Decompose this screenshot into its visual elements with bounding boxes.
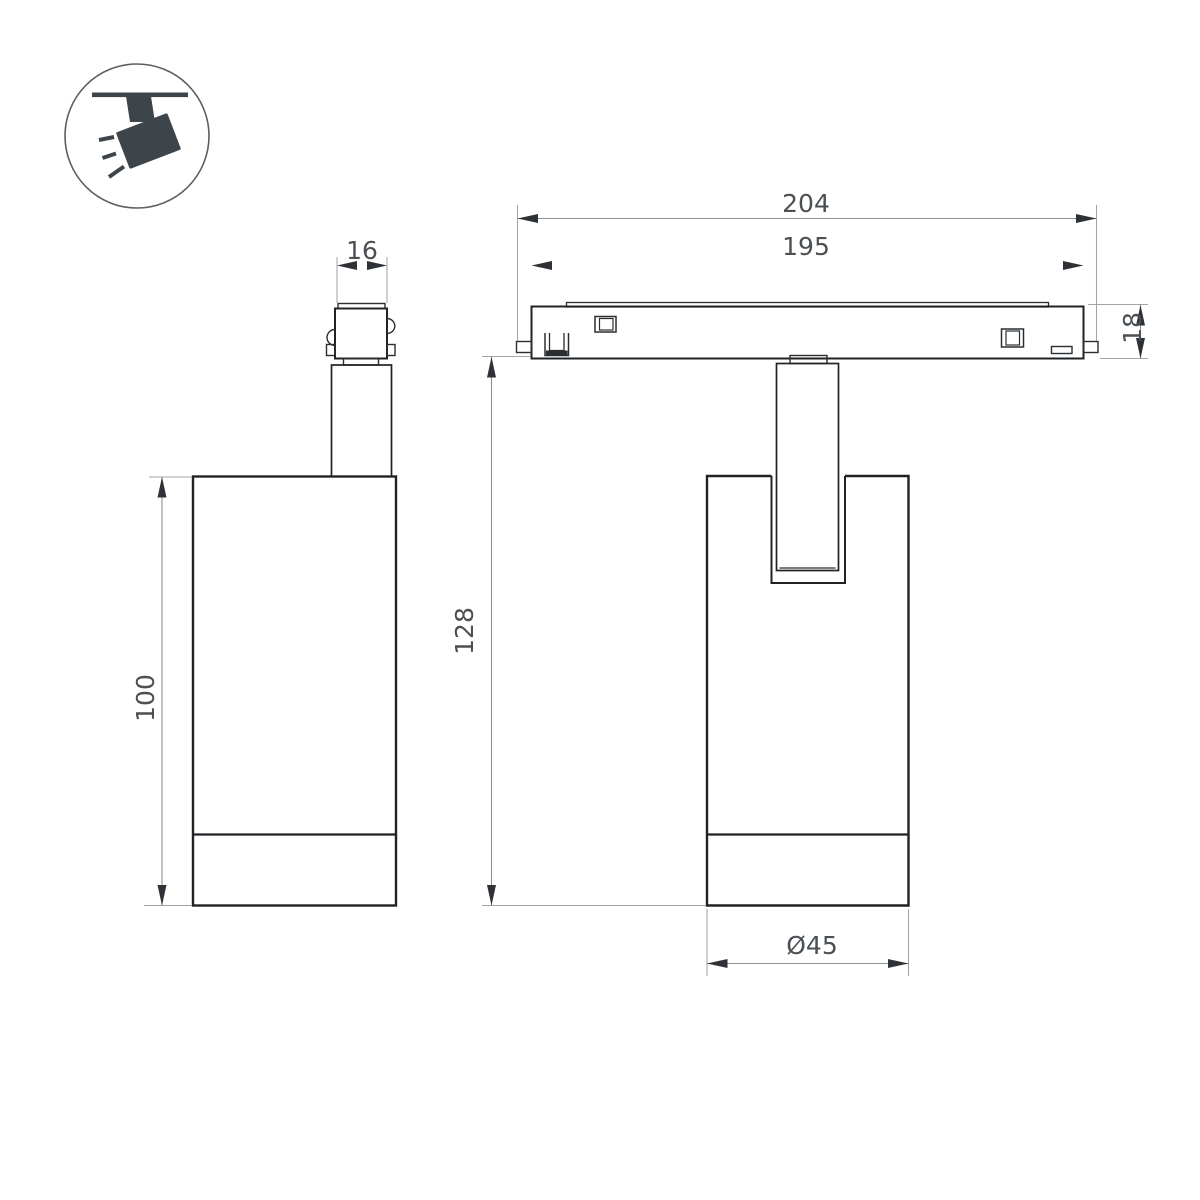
technical-drawing-page: 204 195 18 16 100 128 — [0, 0, 1200, 1200]
track-clip-left-inner — [600, 319, 614, 331]
front-adapter-tab-left — [327, 345, 336, 356]
dimension-body-height: 100 — [131, 477, 192, 906]
side-body — [707, 476, 909, 906]
front-adapter-box — [335, 309, 387, 359]
front-stem — [332, 365, 392, 477]
dim-label-100: 100 — [131, 674, 160, 722]
dimension-body-diameter: Ø45 — [707, 909, 909, 976]
side-stem — [777, 364, 839, 571]
track-u-bracket-inner — [550, 333, 565, 351]
dimension-adapter-width: 16 — [337, 236, 387, 303]
side-body-yoke-slot — [772, 476, 846, 583]
dim-label-diameter-45: Ø45 — [786, 931, 838, 960]
side-view — [517, 303, 1099, 906]
dim-label-16: 16 — [346, 236, 378, 265]
front-body — [193, 477, 396, 906]
track-u-bracket-base — [546, 351, 568, 356]
dim-label-18: 18 — [1118, 312, 1147, 344]
track-end-tab-right — [1084, 342, 1099, 353]
front-adapter-tab-right — [387, 345, 395, 356]
track-slot-right — [1052, 347, 1073, 354]
icon-ceiling-bar — [92, 93, 188, 98]
track-clip-right-inner — [1006, 331, 1020, 345]
track-spotlight-icon — [65, 64, 209, 208]
track-clip-right-outer — [1002, 329, 1024, 347]
track-end-tab-left — [517, 342, 532, 353]
dim-label-128: 128 — [450, 607, 479, 655]
icon-stem — [126, 97, 155, 123]
front-view — [193, 304, 396, 906]
dimension-fixture-height: 128 — [450, 357, 706, 906]
dim-label-195: 195 — [782, 232, 830, 261]
front-adapter-ear-left — [327, 330, 335, 346]
drawing-svg: 204 195 18 16 100 128 — [0, 0, 1200, 1200]
dim-label-204: 204 — [782, 189, 830, 218]
front-adapter-ear-right — [387, 319, 395, 334]
dimension-track-inner-length: 195 — [532, 232, 1084, 270]
